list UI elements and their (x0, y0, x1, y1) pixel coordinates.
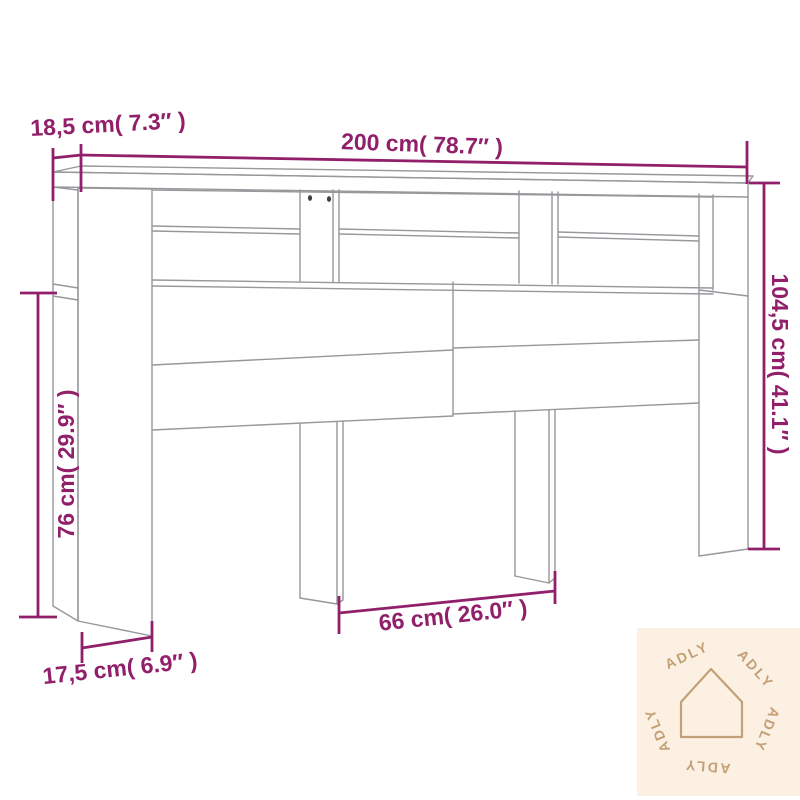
shelf-divider-left (300, 190, 339, 282)
dimension-line-side-height (19, 293, 57, 617)
cam-holes (308, 195, 331, 202)
label-total-width: 200 cm( 78.7″ ) (341, 128, 504, 160)
label-total-height: 104,5 cm( 41.1″ ) (767, 273, 793, 454)
left-leg-panel (78, 188, 152, 636)
right-side-panel (699, 194, 748, 556)
label-leg-depth: 17,5 cm( 6.9″ ) (41, 647, 198, 689)
label-top-depth: 18,5 cm( 7.3″ ) (30, 107, 187, 141)
top-board (53, 166, 753, 197)
shelf-row (152, 190, 713, 294)
diagram-page: 18,5 cm( 7.3″ ) 200 cm( 78.7″ ) 104,5 cm… (0, 0, 800, 800)
diagram-canvas: 18,5 cm( 7.3″ ) 200 cm( 78.7″ ) 104,5 cm… (0, 0, 800, 800)
dimension-labels: 18,5 cm( 7.3″ ) 200 cm( 78.7″ ) 104,5 cm… (30, 107, 793, 689)
watermark: ADLY ADLY ADLY ADLY ADLY (637, 628, 800, 796)
label-side-height: 76 cm( 29.9″ ) (53, 389, 79, 538)
back-panel (152, 282, 699, 430)
center-leg-left (300, 421, 343, 604)
dimension-lines (19, 141, 780, 663)
center-leg-right (515, 410, 555, 583)
furniture-drawing (53, 166, 753, 636)
shelf-divider-right (519, 191, 558, 284)
